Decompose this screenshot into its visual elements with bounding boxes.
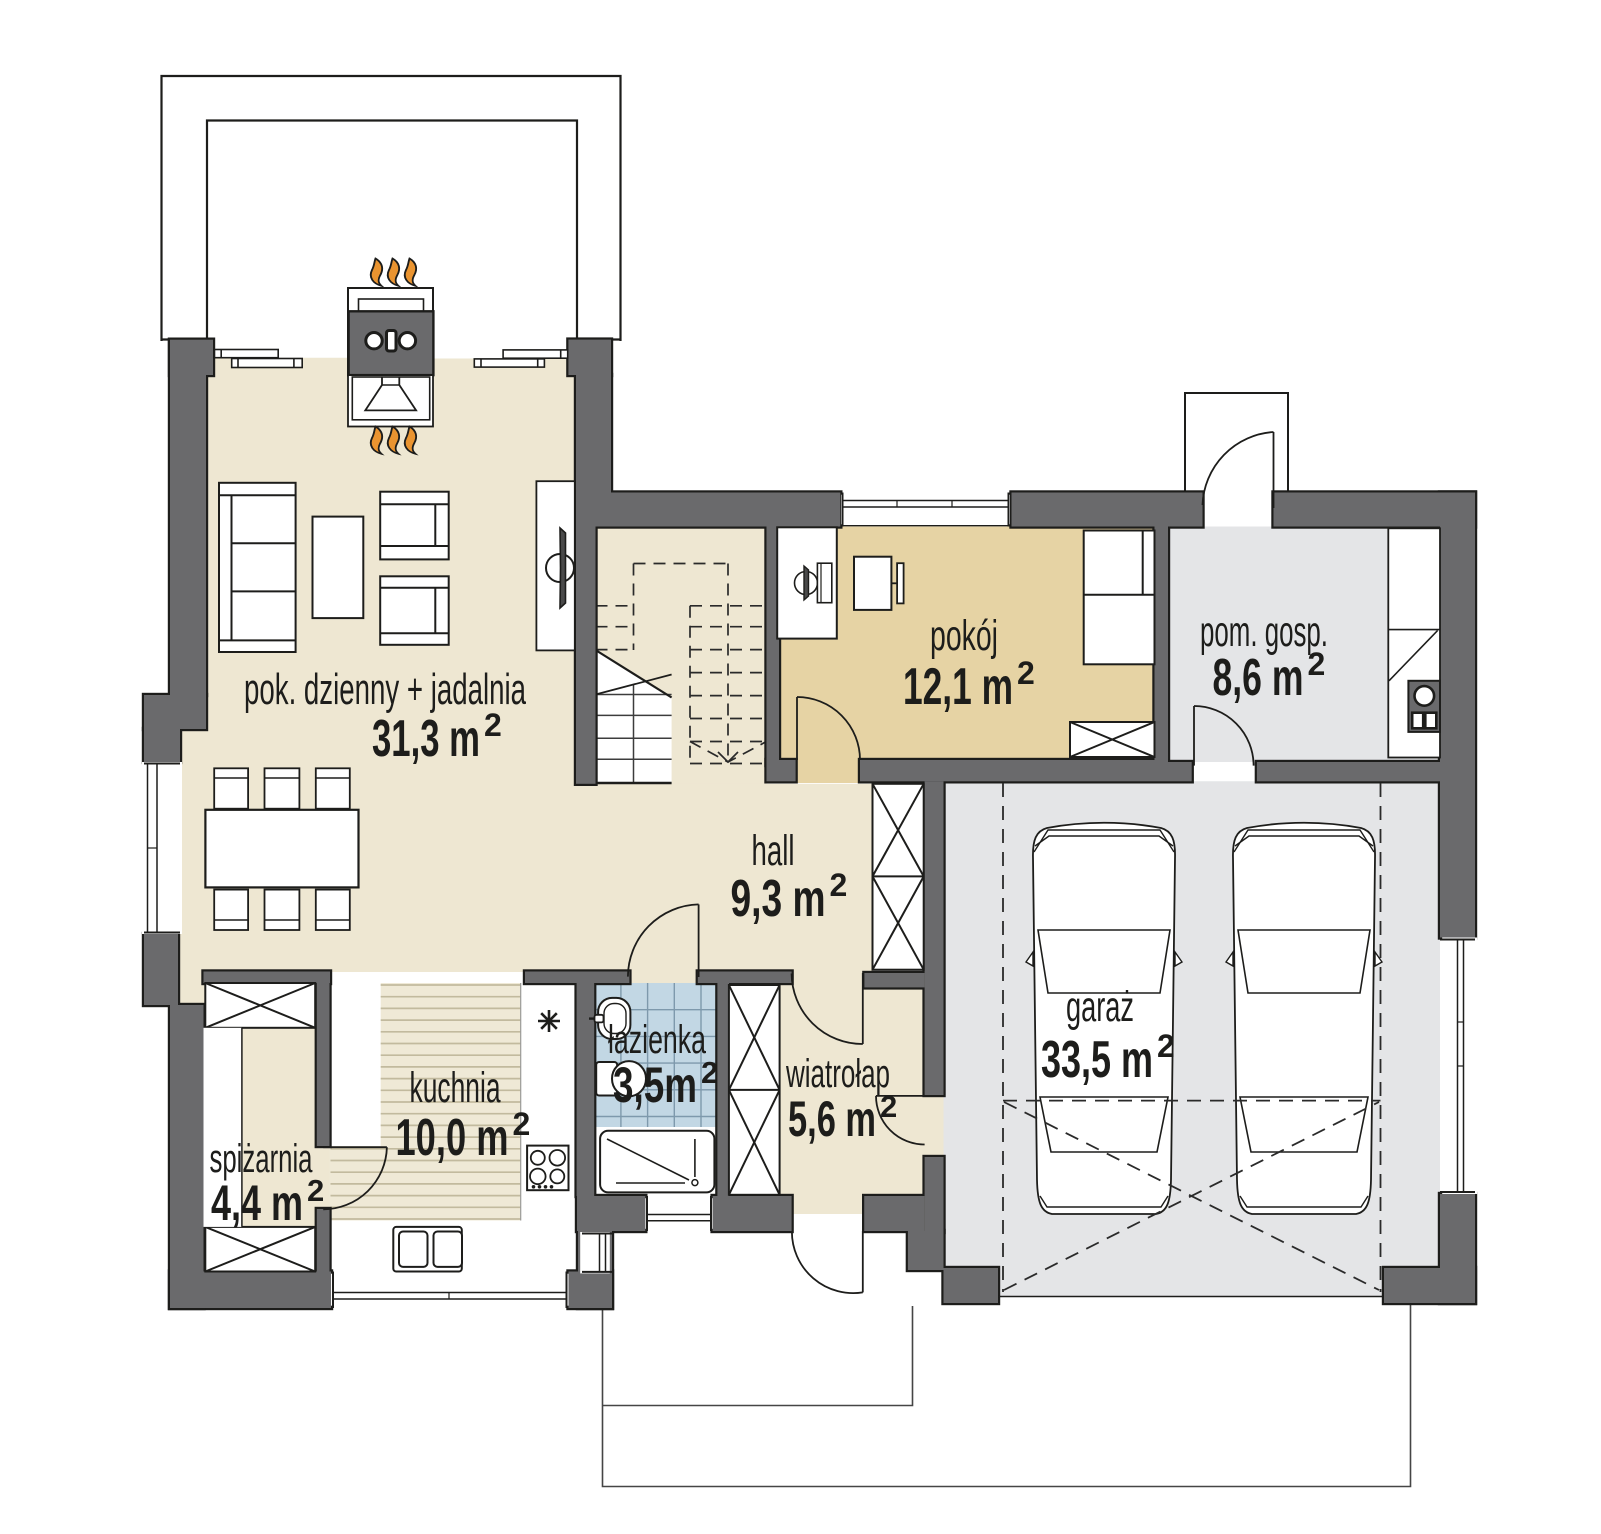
svg-text:2: 2 <box>830 867 848 903</box>
svg-text:3,5m: 3,5m <box>613 1057 697 1113</box>
svg-text:wiatrołap: wiatrołap <box>785 1052 890 1096</box>
svg-text:2: 2 <box>880 1089 897 1124</box>
svg-text:31,3 m: 31,3 m <box>372 710 480 768</box>
svg-text:2: 2 <box>307 1173 324 1208</box>
svg-text:12,1 m: 12,1 m <box>903 658 1013 716</box>
svg-text:2: 2 <box>1308 646 1326 682</box>
svg-text:9,3 m: 9,3 m <box>731 870 826 928</box>
svg-text:łazienka: łazienka <box>608 1018 706 1062</box>
svg-text:kuchnia: kuchnia <box>410 1064 501 1112</box>
svg-text:2: 2 <box>1017 655 1035 691</box>
svg-text:pokój: pokój <box>930 612 998 660</box>
svg-text:8,6 m: 8,6 m <box>1213 649 1304 707</box>
svg-text:33,5 m: 33,5 m <box>1041 1031 1153 1089</box>
svg-text:2: 2 <box>1157 1028 1175 1064</box>
svg-text:garaż: garaż <box>1066 983 1134 1031</box>
svg-text:2: 2 <box>484 707 502 743</box>
svg-text:10,0 m: 10,0 m <box>396 1109 509 1167</box>
svg-text:4,4 m: 4,4 m <box>211 1175 303 1231</box>
svg-text:2: 2 <box>701 1055 718 1090</box>
svg-text:5,6 m: 5,6 m <box>788 1091 876 1147</box>
svg-text:2: 2 <box>513 1106 531 1142</box>
svg-text:hall: hall <box>752 827 795 875</box>
